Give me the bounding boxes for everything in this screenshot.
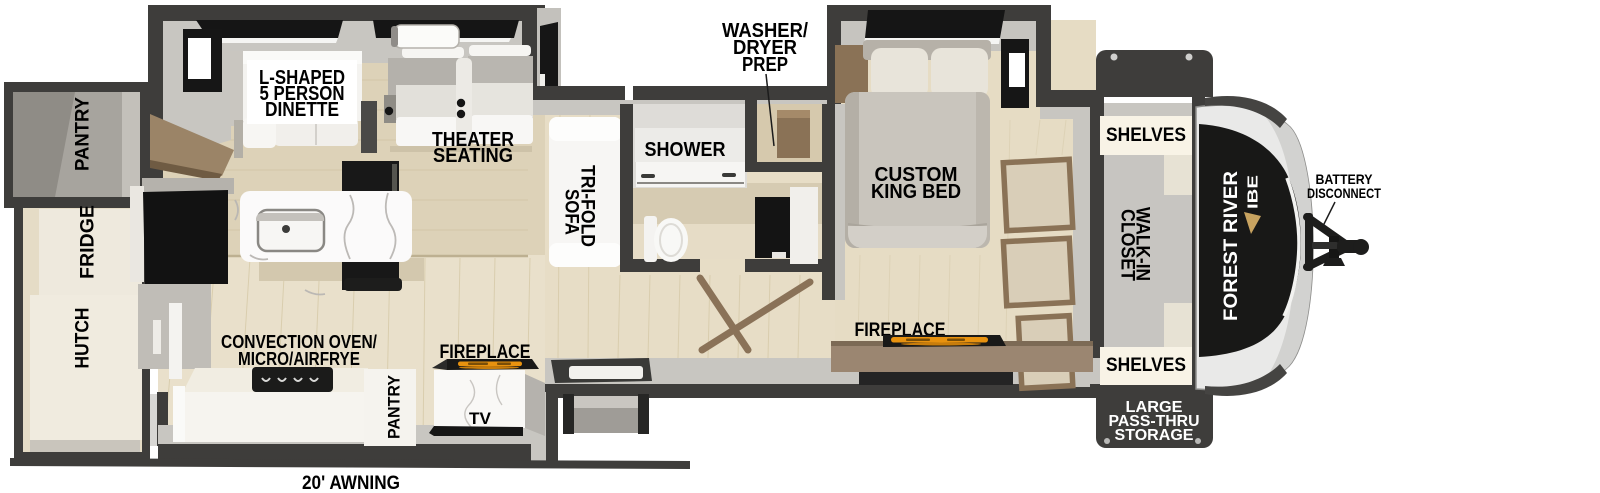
svg-text:PANTRY: PANTRY (385, 374, 404, 439)
svg-text:HUTCH: HUTCH (73, 308, 94, 369)
svg-text:TV: TV (469, 409, 492, 428)
svg-text:PREP: PREP (742, 54, 788, 76)
svg-text:SOFA: SOFA (561, 189, 582, 235)
svg-text:KING BED: KING BED (871, 181, 961, 203)
svg-text:CLOSET: CLOSET (1117, 209, 1138, 281)
svg-text:DINETTE: DINETTE (265, 98, 339, 121)
svg-text:FRIDGE: FRIDGE (78, 205, 99, 279)
svg-text:MICRO/AIRFRYE: MICRO/AIRFRYE (238, 348, 360, 369)
svg-text:SHELVES: SHELVES (1106, 355, 1186, 376)
svg-text:FOREST RIVER: FOREST RIVER (1220, 171, 1242, 321)
svg-text:SHELVES: SHELVES (1106, 125, 1186, 146)
svg-text:IBE: IBE (1245, 175, 1262, 209)
svg-text:STORAGE: STORAGE (1115, 427, 1194, 444)
svg-text:SEATING: SEATING (433, 145, 513, 167)
svg-text:DISCONNECT: DISCONNECT (1307, 185, 1381, 201)
svg-text:SHOWER: SHOWER (645, 139, 727, 161)
svg-text:PANTRY: PANTRY (73, 97, 94, 171)
svg-text:20' AWNING: 20' AWNING (302, 473, 400, 493)
